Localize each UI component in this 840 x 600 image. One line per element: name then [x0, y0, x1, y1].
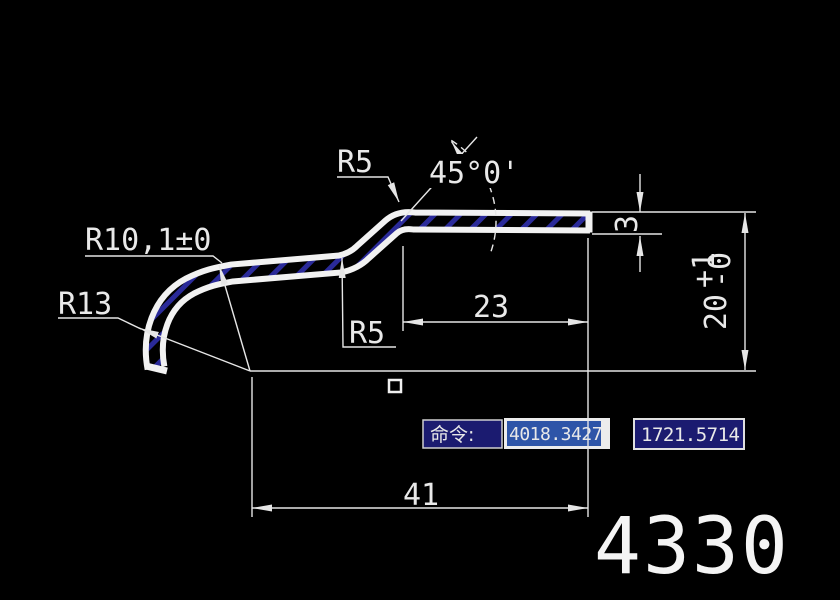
dim-23-label: 23: [473, 290, 509, 325]
dim-angle-label: 45°0': [429, 156, 519, 191]
drawing-canvas[interactable]: R10,1±0 R13 R5 R5 45°0' 23 41 3 20 +1 -0…: [0, 0, 840, 600]
coord-y-value[interactable]: 1721.5714: [641, 424, 740, 446]
command-prompt-label: 命令:: [430, 424, 474, 446]
dim-r10-label: R10,1±0: [85, 223, 211, 258]
cad-viewport[interactable]: R10,1±0 R13 R5 R5 45°0' 23 41 3 20 +1 -0…: [0, 0, 840, 600]
part-end-cap-left: [146, 366, 167, 371]
dim-41-label: 41: [403, 478, 439, 513]
dim-r5-top-label: R5: [337, 145, 373, 180]
part-number: 4330: [594, 502, 790, 592]
dim-20-label: 20 +1 -0: [687, 252, 738, 330]
dim-20-tol-minus: -0: [703, 252, 738, 288]
dim-r13-label: R13: [58, 287, 112, 322]
dim-3-label: 3: [610, 215, 645, 233]
command-bar: 命令: 4018.3427 1721.5714: [423, 418, 744, 449]
grip-marker[interactable]: [389, 380, 401, 392]
dim-r5-bottom-label: R5: [349, 316, 385, 351]
dim-20-value: 20: [699, 294, 734, 330]
leader-r5-top: [337, 177, 399, 202]
